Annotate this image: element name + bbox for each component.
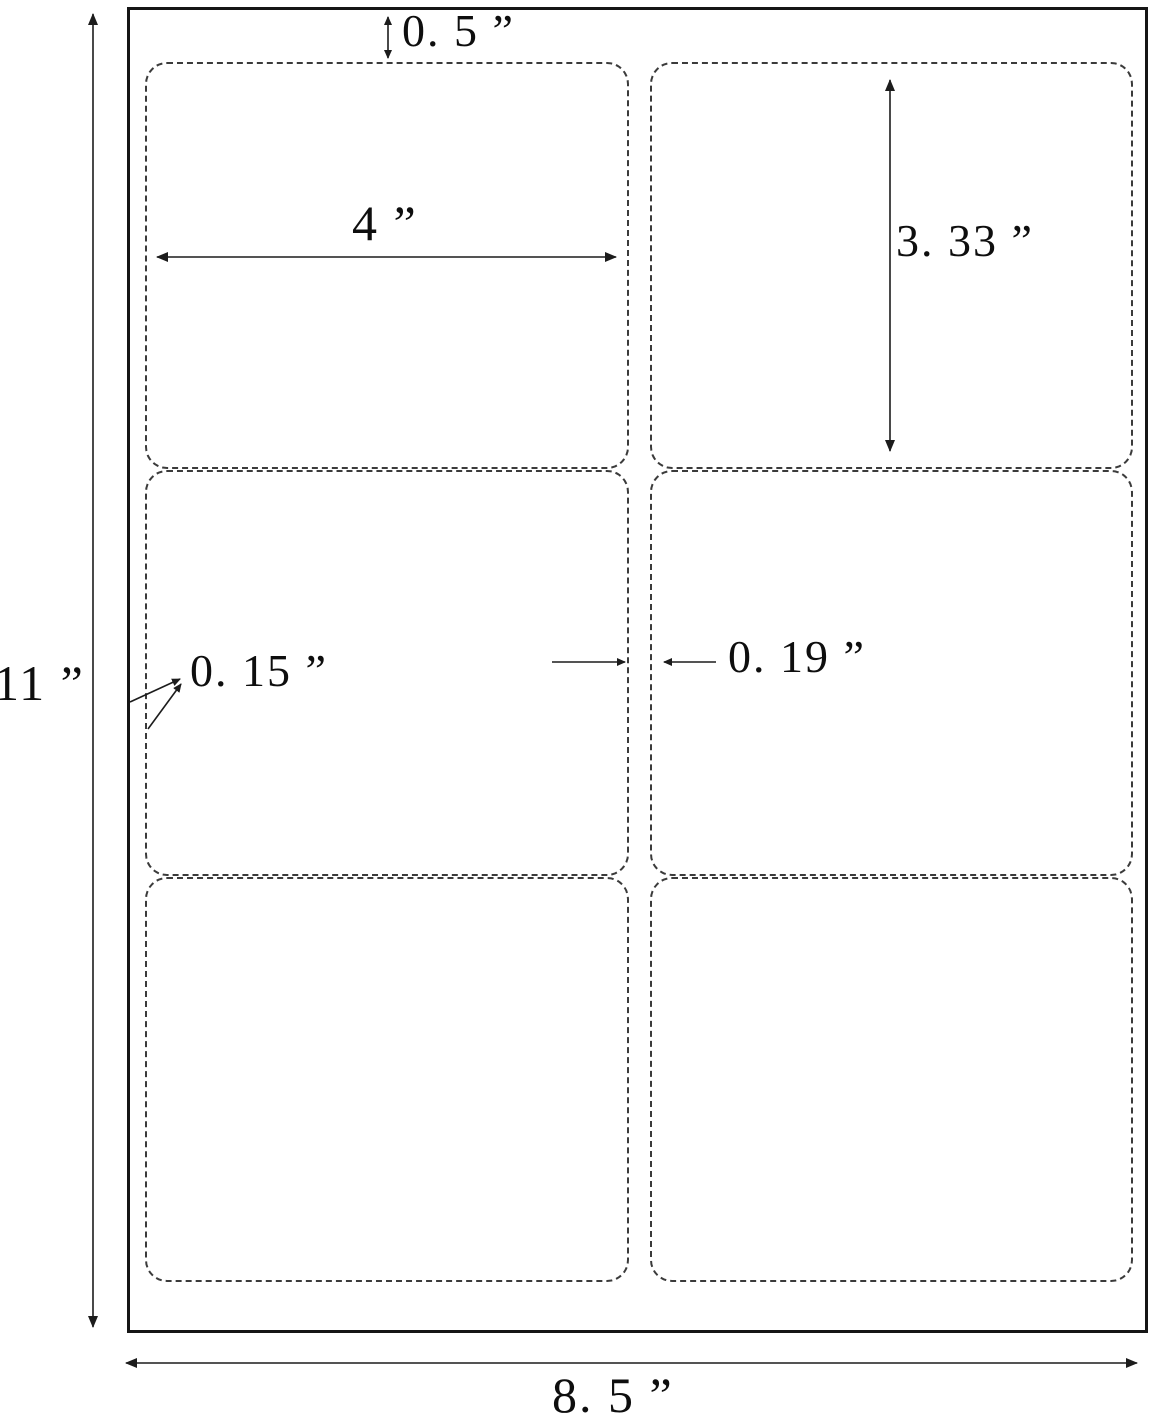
label-sheet-diagram: 11 ” 8. 5 ” 0. 5 ” 4 ” 3. 33 ” 0. 15 ” 0… [0,0,1158,1422]
label-cell [650,62,1133,469]
label-width-label: 4 ” [352,198,418,248]
top-margin-label: 0. 5 ” [402,8,515,54]
page-height-label: 11 ” [0,658,85,708]
label-cell [650,877,1133,1282]
label-cell [145,62,629,469]
label-cell [145,877,629,1282]
page-width-label: 8. 5 ” [552,1370,674,1420]
label-height-label: 3. 33 ” [896,218,1034,264]
column-gap-label: 0. 19 ” [728,634,866,680]
label-cell [650,470,1133,876]
side-margin-label: 0. 15 ” [190,648,328,694]
